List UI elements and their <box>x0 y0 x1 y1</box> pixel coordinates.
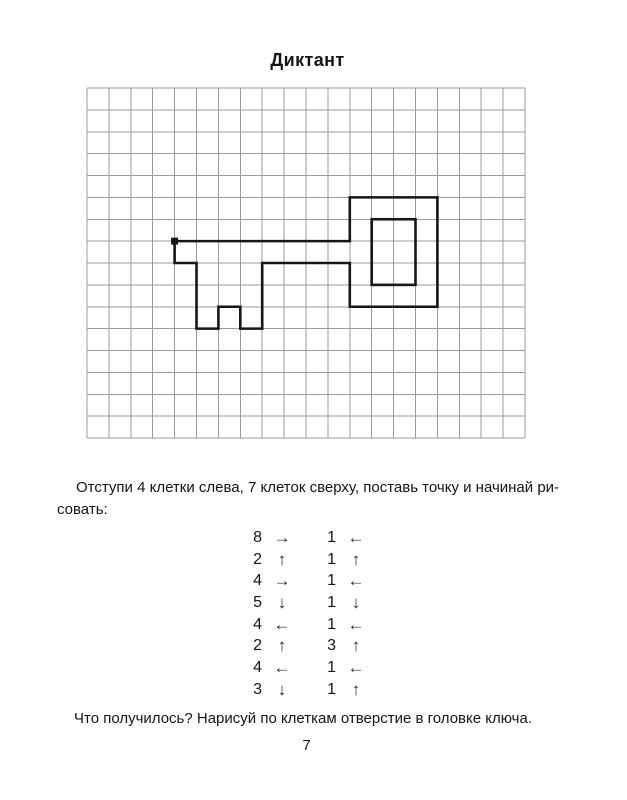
instruction-line-2: совать: <box>57 499 572 521</box>
dictation-steps: 8→1←2↑1↑4→1←5↓1↓4←1←2↑3↑4←1←3↓1↑ <box>246 527 368 701</box>
step-count: 1 <box>320 659 336 677</box>
grid-figure-key <box>87 88 525 438</box>
step-count: 1 <box>320 529 336 547</box>
step-count: 4 <box>246 659 262 677</box>
step-count: 1 <box>320 616 336 634</box>
step-count: 5 <box>246 594 262 612</box>
arrow-right-icon: → <box>270 571 294 591</box>
arrow-up-icon: ↑ <box>344 636 368 656</box>
step-count: 4 <box>246 616 262 634</box>
arrow-left-icon: ← <box>344 528 368 548</box>
arrow-down-icon: ↓ <box>270 680 294 700</box>
dictation-grid <box>87 88 525 438</box>
dictation-row: 2↑1↑ <box>246 549 368 571</box>
step-count: 1 <box>320 594 336 612</box>
arrow-left-icon: ← <box>344 658 368 678</box>
arrow-down-icon: ↓ <box>270 593 294 613</box>
arrow-left-icon: ← <box>270 615 294 635</box>
arrow-up-icon: ↑ <box>270 550 294 570</box>
dictation-row: 4←1← <box>246 657 368 679</box>
dictation-row: 4→1← <box>246 570 368 592</box>
step-count: 2 <box>246 551 262 569</box>
page-title: Диктант <box>0 50 621 71</box>
dictation-row: 8→1← <box>246 527 368 549</box>
dictation-row: 5↓1↓ <box>246 592 368 614</box>
start-point-dot <box>171 238 178 245</box>
instruction-line-1: Отступи 4 клетки слева, 7 клеток сверху,… <box>57 477 572 499</box>
dictation-row: 2↑3↑ <box>246 635 368 657</box>
arrow-up-icon: ↑ <box>270 636 294 656</box>
question-text: Что получилось? Нарисуй по клеткам отвер… <box>74 710 532 727</box>
arrow-up-icon: ↑ <box>344 550 368 570</box>
step-count: 1 <box>320 551 336 569</box>
arrow-left-icon: ← <box>344 571 368 591</box>
step-count: 1 <box>320 681 336 699</box>
step-count: 1 <box>320 572 336 590</box>
step-count: 2 <box>246 637 262 655</box>
arrow-down-icon: ↓ <box>344 593 368 613</box>
arrow-left-icon: ← <box>270 658 294 678</box>
instruction-text: Отступи 4 клетки слева, 7 клеток сверху,… <box>57 477 572 521</box>
page-number: 7 <box>0 737 620 754</box>
arrow-up-icon: ↑ <box>344 680 368 700</box>
arrow-left-icon: ← <box>344 615 368 635</box>
workbook-page: Диктант Отступи 4 клетки слева, 7 клеток… <box>0 0 627 800</box>
arrow-right-icon: → <box>270 528 294 548</box>
step-count: 3 <box>246 681 262 699</box>
dictation-row: 4←1← <box>246 614 368 636</box>
step-count: 8 <box>246 529 262 547</box>
step-count: 4 <box>246 572 262 590</box>
step-count: 3 <box>320 637 336 655</box>
dictation-row: 3↓1↑ <box>246 679 368 701</box>
